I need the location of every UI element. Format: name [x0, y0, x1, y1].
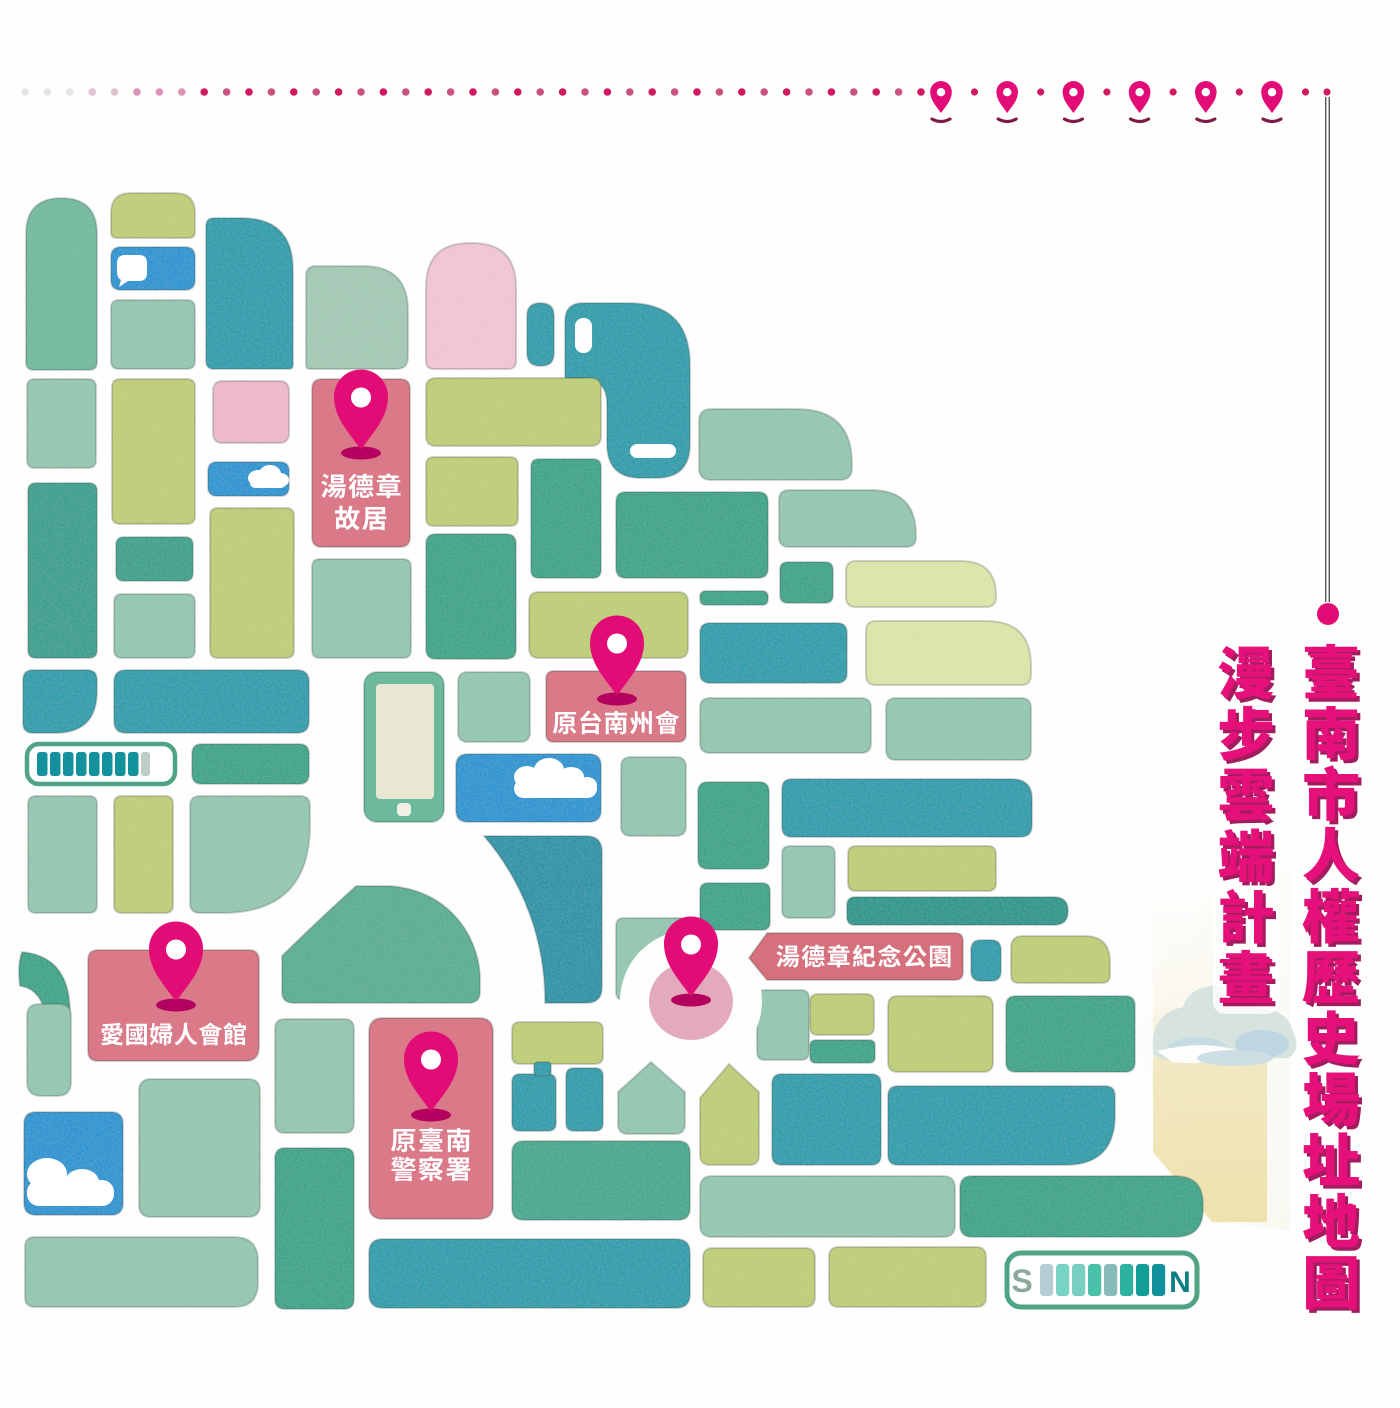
- svg-text:N: N: [1169, 1266, 1191, 1299]
- svg-text:S: S: [1011, 1263, 1032, 1299]
